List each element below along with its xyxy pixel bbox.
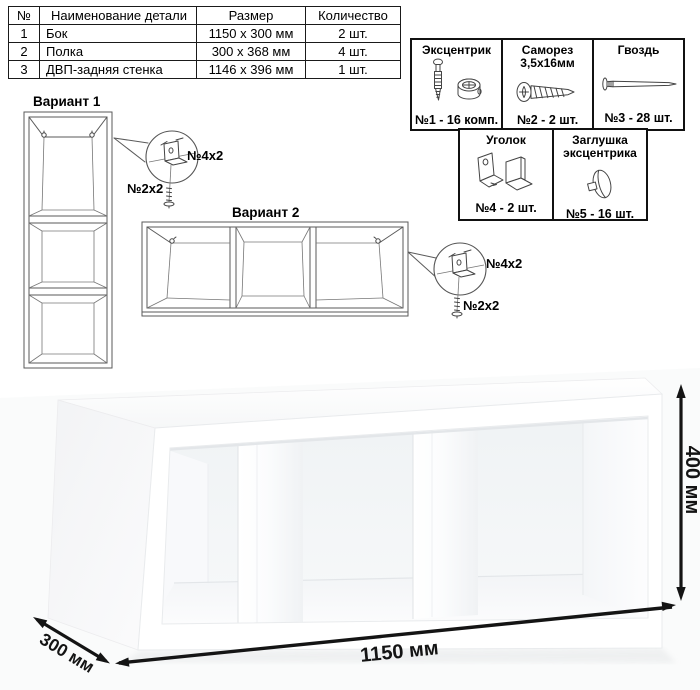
hardware-count: №4 - 2 шт. bbox=[475, 201, 536, 215]
variant1-screw-label: №2х2 bbox=[127, 181, 163, 196]
parts-table: № Наименование детали Размер Количество … bbox=[8, 6, 401, 79]
mount-screw-icon bbox=[42, 131, 94, 137]
hardware-item-screw: Саморез 3,5х16мм №2 - 2 шт. bbox=[501, 38, 594, 131]
hardware-count: №2 - 2 шт. bbox=[517, 113, 578, 127]
variant2-title: Вариант 2 bbox=[232, 205, 299, 220]
part-qty: 2 шт. bbox=[306, 25, 401, 43]
hardware-title: Эксцентрик bbox=[422, 44, 491, 57]
part-qty: 4 шт. bbox=[306, 43, 401, 61]
hardware-item-nail: Гвоздь №3 - 28 шт. bbox=[592, 38, 685, 131]
cam-lock-icon bbox=[458, 79, 481, 99]
cap-icon bbox=[575, 161, 625, 207]
header-name: Наименование детали bbox=[40, 7, 197, 25]
hardware-item-bracket: Уголок №4 - 2 шт. bbox=[458, 128, 554, 221]
nail-icon bbox=[599, 57, 679, 111]
table-row: 2 Полка 300 x 368 мм 4 шт. bbox=[9, 43, 401, 61]
variant2-callout bbox=[405, 238, 540, 338]
variant2-screw-label: №2х2 bbox=[463, 298, 499, 313]
variant1-callout bbox=[112, 118, 247, 223]
mount-screw-icon bbox=[374, 237, 380, 243]
table-row: 3 ДВП-задняя стенка 1146 x 396 мм 1 шт. bbox=[9, 61, 401, 79]
part-size: 300 x 368 мм bbox=[197, 43, 306, 61]
shelf-divider bbox=[413, 421, 478, 619]
part-num: 1 bbox=[9, 25, 40, 43]
hardware-count: №5 - 16 шт. bbox=[566, 207, 634, 221]
hardware-box-row2: Уголок №4 - 2 шт. Заглушка эксцентрика bbox=[458, 128, 648, 221]
part-name: Бок bbox=[40, 25, 197, 43]
eccentric-icon bbox=[421, 57, 493, 113]
hardware-title: Заглушка эксцентрика bbox=[554, 134, 646, 161]
variant1-title: Вариант 1 bbox=[33, 94, 100, 109]
hardware-title: Гвоздь bbox=[618, 44, 660, 57]
hardware-count: №3 - 28 шт. bbox=[604, 111, 672, 125]
part-name: ДВП-задняя стенка bbox=[40, 61, 197, 79]
header-num: № bbox=[9, 7, 40, 25]
hardware-title: Саморез 3,5х16мм bbox=[503, 44, 592, 71]
part-num: 3 bbox=[9, 61, 40, 79]
part-size: 1146 x 396 мм bbox=[197, 61, 306, 79]
parts-table-header-row: № Наименование детали Размер Количество bbox=[9, 7, 401, 25]
height-label: 400 мм bbox=[681, 446, 700, 515]
assembly-instruction-sheet: № Наименование детали Размер Количество … bbox=[0, 0, 700, 690]
hardware-title: Уголок bbox=[486, 134, 526, 147]
variant1-bracket-label: №4х2 bbox=[187, 148, 223, 163]
hardware-count: №1 - 16 комп. bbox=[415, 113, 498, 127]
shelf-left-panel bbox=[48, 400, 155, 650]
mount-screw-icon bbox=[170, 237, 176, 243]
corner-bracket-icon bbox=[473, 147, 539, 201]
hardware-item-eccentric: Эксцентрик bbox=[410, 38, 503, 131]
part-num: 2 bbox=[9, 43, 40, 61]
assembled-shelf-render: 400 мм 1150 мм 300 мм bbox=[0, 368, 700, 690]
variant1-drawing bbox=[20, 110, 125, 372]
shelf-divider bbox=[238, 432, 303, 626]
variant2-bracket-label: №4х2 bbox=[486, 256, 522, 271]
screw-icon bbox=[510, 71, 586, 113]
part-name: Полка bbox=[40, 43, 197, 61]
hardware-box-row1: Эксцентрик bbox=[410, 38, 685, 131]
hardware-item-cap: Заглушка эксцентрика №5 - 16 шт. bbox=[552, 128, 648, 221]
table-row: 1 Бок 1150 x 300 мм 2 шт. bbox=[9, 25, 401, 43]
header-size: Размер bbox=[197, 7, 306, 25]
part-size: 1150 x 300 мм bbox=[197, 25, 306, 43]
header-qty: Количество bbox=[306, 7, 401, 25]
part-qty: 1 шт. bbox=[306, 61, 401, 79]
variant2-drawing bbox=[140, 220, 420, 325]
